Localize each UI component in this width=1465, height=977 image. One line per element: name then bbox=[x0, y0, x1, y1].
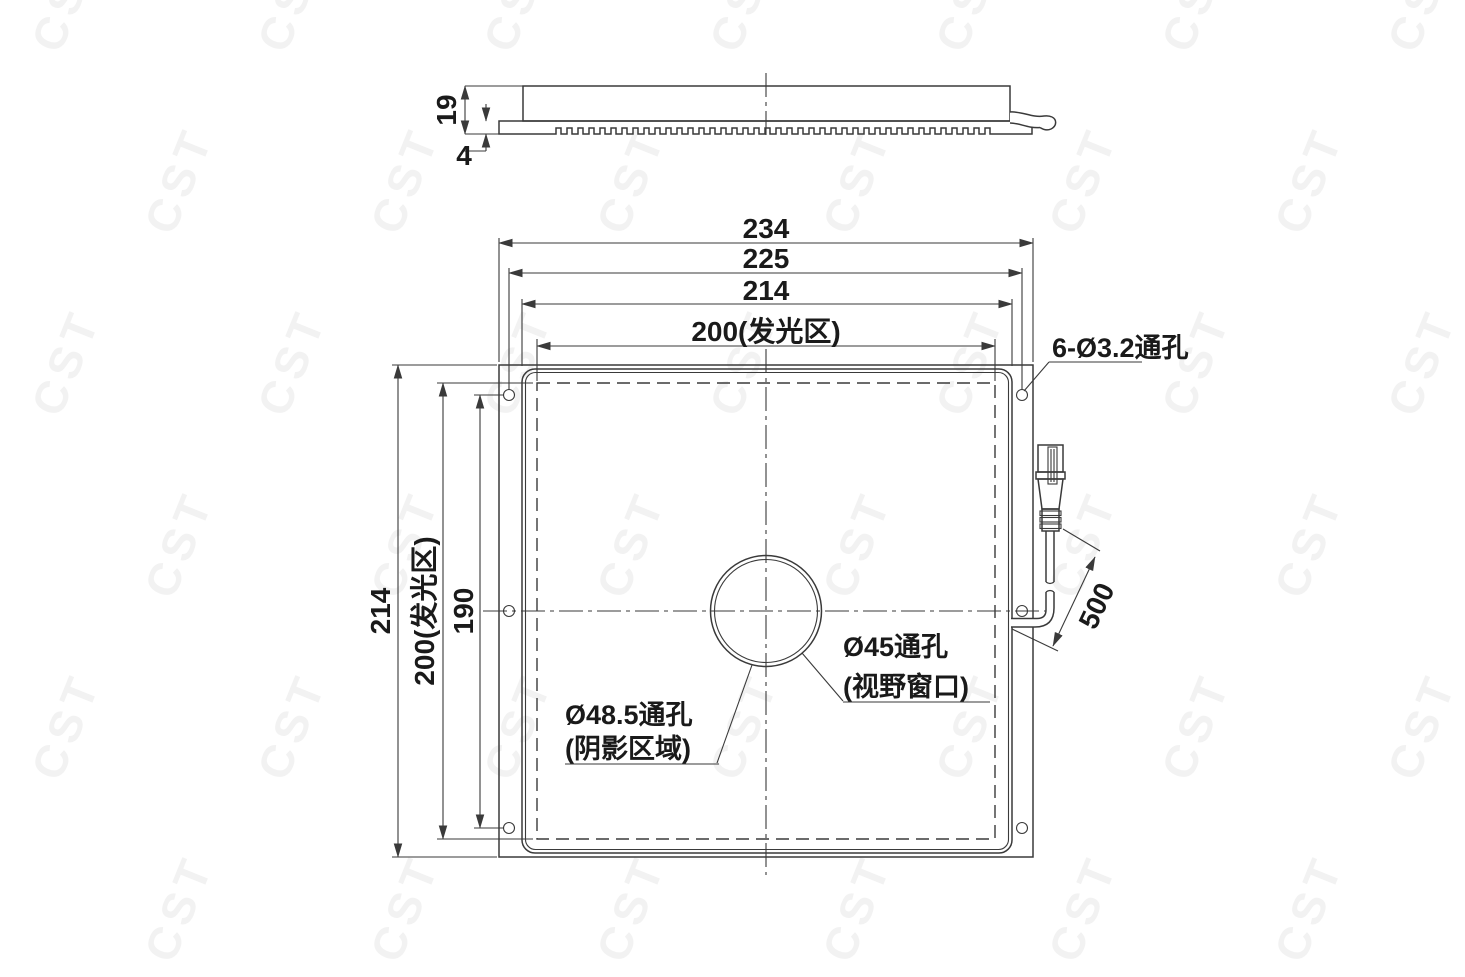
dim-225-label: 225 bbox=[743, 243, 790, 274]
watermark-text: CST bbox=[473, 665, 562, 786]
dim-214-label: 214 bbox=[743, 275, 790, 306]
dim-234-label: 234 bbox=[743, 213, 790, 244]
watermark-text: CST bbox=[812, 119, 901, 240]
shadow-area-label-line1: Ø48.5通孔 bbox=[565, 700, 693, 730]
technical-drawing-page: CSTCSTCSTCSTCSTCSTCSTCSTCSTCSTCSTCSTCSTC… bbox=[0, 0, 1465, 977]
cable-break bbox=[1046, 591, 1054, 593]
watermark-text: CST bbox=[1377, 301, 1465, 422]
watermark-text: CST bbox=[21, 665, 110, 786]
cable-connector bbox=[1011, 445, 1065, 627]
watermark-text: CST bbox=[247, 301, 336, 422]
watermark-text: CST bbox=[134, 119, 223, 240]
watermark-text: CST bbox=[1151, 0, 1240, 59]
side-dim-19: 19 bbox=[431, 86, 523, 134]
watermark-text: CST bbox=[699, 0, 788, 59]
drawing-canvas: CSTCSTCSTCSTCSTCSTCSTCSTCSTCSTCSTCSTCSTC… bbox=[0, 0, 1465, 977]
watermark-text: CST bbox=[1038, 483, 1127, 604]
watermark-text: CST bbox=[1038, 119, 1127, 240]
watermark-text: CST bbox=[586, 483, 675, 604]
dim-200-v-label: 200(发光区) bbox=[408, 536, 440, 685]
watermark-text: CST bbox=[247, 0, 336, 59]
watermark-text: CST bbox=[21, 0, 110, 59]
watermark-text: CST bbox=[1264, 483, 1353, 604]
mounting-hole bbox=[1017, 390, 1028, 401]
cable-lower-inner bbox=[1011, 592, 1046, 619]
leader-line bbox=[1024, 362, 1049, 391]
extension-line bbox=[1012, 629, 1058, 651]
mounting-hole bbox=[504, 823, 515, 834]
connector-boot bbox=[1042, 509, 1059, 531]
watermark-text: CST bbox=[1377, 665, 1465, 786]
dim-214-v-label: 214 bbox=[365, 587, 396, 634]
watermark-text: CST bbox=[1264, 847, 1353, 968]
watermark-text: CST bbox=[812, 483, 901, 604]
boot-rib bbox=[1040, 511, 1061, 516]
watermark-text: CST bbox=[360, 119, 449, 240]
leader-line bbox=[802, 653, 843, 701]
watermark-text: CST bbox=[1038, 847, 1127, 968]
watermark-text: CST bbox=[586, 119, 675, 240]
view-window-callout: Ø45通孔 (视野窗口) bbox=[802, 632, 990, 702]
dim-190-v-label: 190 bbox=[448, 588, 479, 635]
boot-rib bbox=[1040, 524, 1061, 529]
dim-19-label: 19 bbox=[431, 94, 462, 125]
shadow-area-label-line2: (阴影区域) bbox=[565, 734, 691, 764]
watermark-text: CST bbox=[1377, 0, 1465, 59]
watermark-text: CST bbox=[925, 0, 1014, 59]
watermark-text: CST bbox=[1151, 665, 1240, 786]
watermark-text: CST bbox=[473, 0, 562, 59]
watermark-text: CST bbox=[134, 483, 223, 604]
watermark-text: CST bbox=[699, 665, 788, 786]
watermark-text: CST bbox=[473, 301, 562, 422]
watermark-text: CST bbox=[812, 847, 901, 968]
watermark-text: CST bbox=[925, 301, 1014, 422]
mounting-hole bbox=[1017, 823, 1028, 834]
dim-200-label: 200(发光区) bbox=[691, 315, 840, 347]
watermark-layer: CSTCSTCSTCSTCSTCSTCSTCSTCSTCSTCSTCSTCSTC… bbox=[21, 0, 1465, 969]
watermark-text: CST bbox=[21, 301, 110, 422]
view-window-label-line1: Ø45通孔 bbox=[843, 632, 948, 662]
left-dimensions: 214 200(发光区) 190 bbox=[365, 365, 533, 857]
watermark-text: CST bbox=[134, 847, 223, 968]
dim-4-label: 4 bbox=[456, 140, 472, 171]
watermark-text: CST bbox=[586, 847, 675, 968]
view-window-label-line2: (视野窗口) bbox=[843, 671, 969, 702]
boot-rib bbox=[1040, 518, 1061, 523]
watermark-text: CST bbox=[1264, 119, 1353, 240]
side-view: 19 4 bbox=[431, 73, 1056, 171]
mounting-holes-label: 6-Ø3.2通孔 bbox=[1052, 333, 1189, 363]
watermark-text: CST bbox=[247, 665, 336, 786]
watermark-text: CST bbox=[360, 847, 449, 968]
